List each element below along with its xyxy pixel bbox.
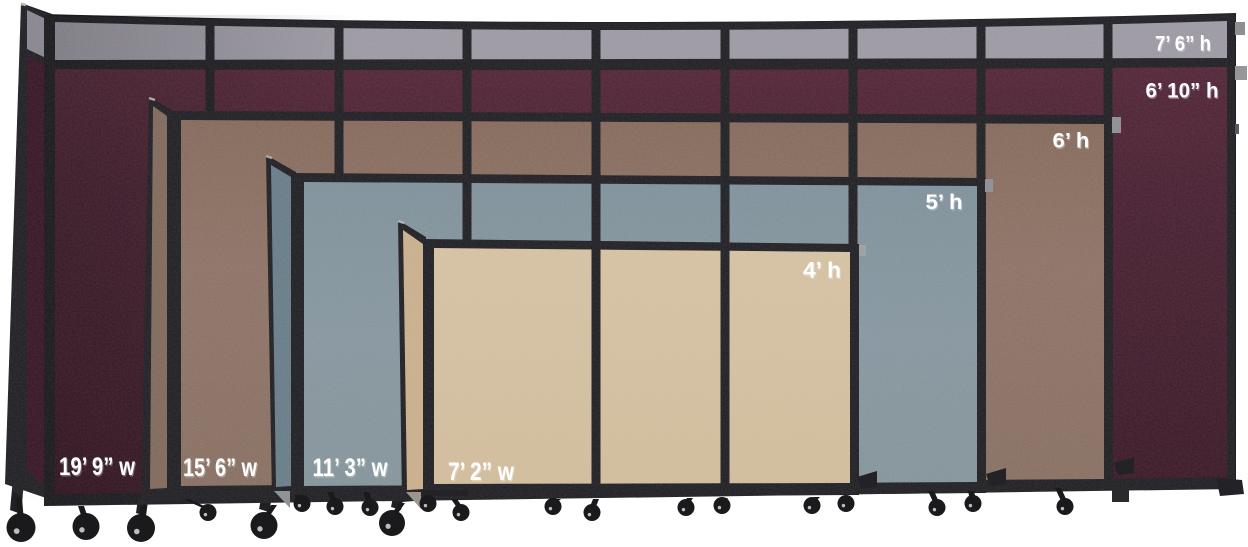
svg-text:19’ 9” w: 19’ 9” w (59, 453, 135, 481)
svg-text:6’ h: 6’ h (1053, 130, 1090, 153)
svg-text:4’ h: 4’ h (803, 258, 841, 283)
svg-text:7’ 2” w: 7’ 2” w (448, 458, 514, 486)
svg-text:15’ 6” w: 15’ 6” w (183, 454, 257, 482)
svg-text:7’ 6” h: 7’ 6” h (1155, 33, 1211, 56)
svg-text:5’ h: 5’ h (926, 190, 963, 214)
svg-text:11’ 3” w: 11’ 3” w (313, 454, 388, 482)
svg-text:6’ 10” h: 6’ 10” h (1146, 80, 1219, 103)
